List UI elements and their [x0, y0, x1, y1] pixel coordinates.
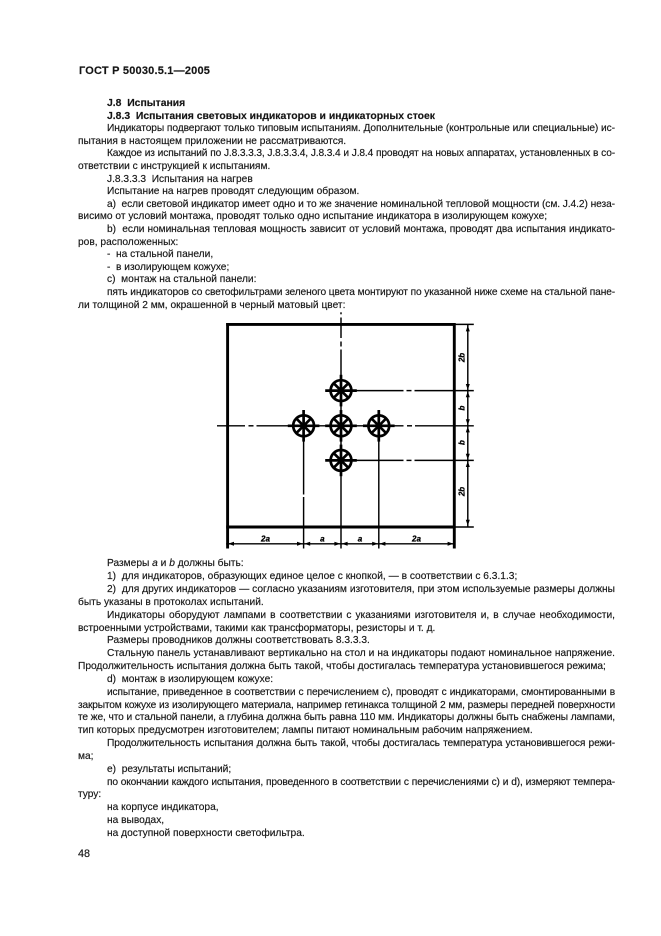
svg-text:2a: 2a	[260, 535, 270, 544]
svg-text:b: b	[457, 405, 466, 410]
svg-text:b: b	[457, 440, 466, 445]
svg-text:a: a	[320, 535, 325, 544]
svg-text:2b: 2b	[457, 487, 466, 497]
svg-text:2a: 2a	[411, 535, 421, 544]
svg-text:a: a	[358, 535, 363, 544]
svg-text:2b: 2b	[457, 353, 466, 363]
